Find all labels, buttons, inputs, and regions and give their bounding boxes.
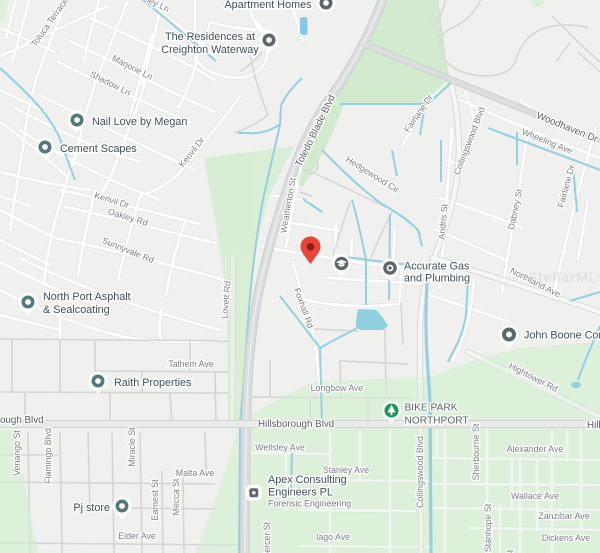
svg-text:StellarMLS: StellarMLS: [528, 269, 600, 285]
svg-text:Engineers PL: Engineers PL: [268, 487, 333, 499]
svg-text:Earnest St: Earnest St: [150, 479, 160, 521]
svg-text:ough Blvd: ough Blvd: [0, 415, 44, 426]
svg-text:Wallace Ave: Wallace Ave: [511, 491, 559, 501]
svg-text:Forensic Engineering: Forensic Engineering: [268, 499, 351, 509]
svg-text:Mecca St: Mecca St: [171, 478, 181, 515]
svg-text:and Plumbing: and Plumbing: [404, 273, 470, 285]
svg-text:Cement Scapes: Cement Scapes: [60, 143, 137, 155]
svg-text:North Port Asphalt: North Port Asphalt: [43, 291, 131, 303]
svg-text:Venango St: Venango St: [12, 430, 22, 476]
svg-text:Mercer St: Mercer St: [262, 521, 272, 553]
svg-text:Harold St: Harold St: [505, 549, 515, 553]
svg-text:Flamingo Blvd: Flamingo Blvd: [43, 428, 53, 484]
svg-text:Malta Ave: Malta Ave: [176, 468, 215, 478]
svg-text:Pj store: Pj store: [73, 502, 110, 514]
svg-text:Apartment Homes: Apartment Homes: [224, 0, 312, 11]
svg-text:Longbow Ave: Longbow Ave: [311, 383, 364, 393]
svg-text:Sherbourne St: Sherbourne St: [471, 423, 481, 480]
svg-text:Apex Consulting: Apex Consulting: [268, 474, 347, 486]
svg-text:The Residences at: The Residences at: [165, 31, 255, 43]
svg-text:Raith Properties: Raith Properties: [114, 377, 192, 389]
svg-text:Dickens Ave: Dickens Ave: [542, 533, 590, 543]
svg-text:Creighton Waterway: Creighton Waterway: [161, 44, 259, 56]
svg-text:NORTHPORT: NORTHPORT: [405, 416, 469, 427]
svg-text:Zanzibar Ave: Zanzibar Ave: [538, 511, 589, 521]
svg-text:Elder Ave: Elder Ave: [118, 531, 156, 541]
svg-text:Wellsley Ave: Wellsley Ave: [255, 443, 305, 453]
svg-text:& Sealcoating: & Sealcoating: [43, 304, 110, 316]
svg-text:Nail Love by Megan: Nail Love by Megan: [92, 116, 187, 128]
svg-text:Miracle St: Miracle St: [127, 427, 137, 467]
svg-text:Talhem Ave: Talhem Ave: [168, 359, 213, 369]
svg-text:Iago Ave: Iago Ave: [316, 532, 350, 542]
svg-text:Hillsborough Blvd: Hillsborough Blvd: [258, 419, 334, 430]
svg-text:Alexander Ave: Alexander Ave: [507, 444, 564, 454]
svg-text:John Boone Consu: John Boone Consu: [524, 330, 600, 342]
svg-text:Collingswood Blvd: Collingswood Blvd: [415, 436, 425, 508]
svg-text:Accurate Gas: Accurate Gas: [404, 261, 470, 273]
svg-text:Hillsborough Blvd: Hillsborough Blvd: [587, 420, 600, 431]
svg-text:Stanhope St: Stanhope St: [483, 503, 493, 552]
svg-text:BIKE PARK: BIKE PARK: [405, 403, 458, 414]
